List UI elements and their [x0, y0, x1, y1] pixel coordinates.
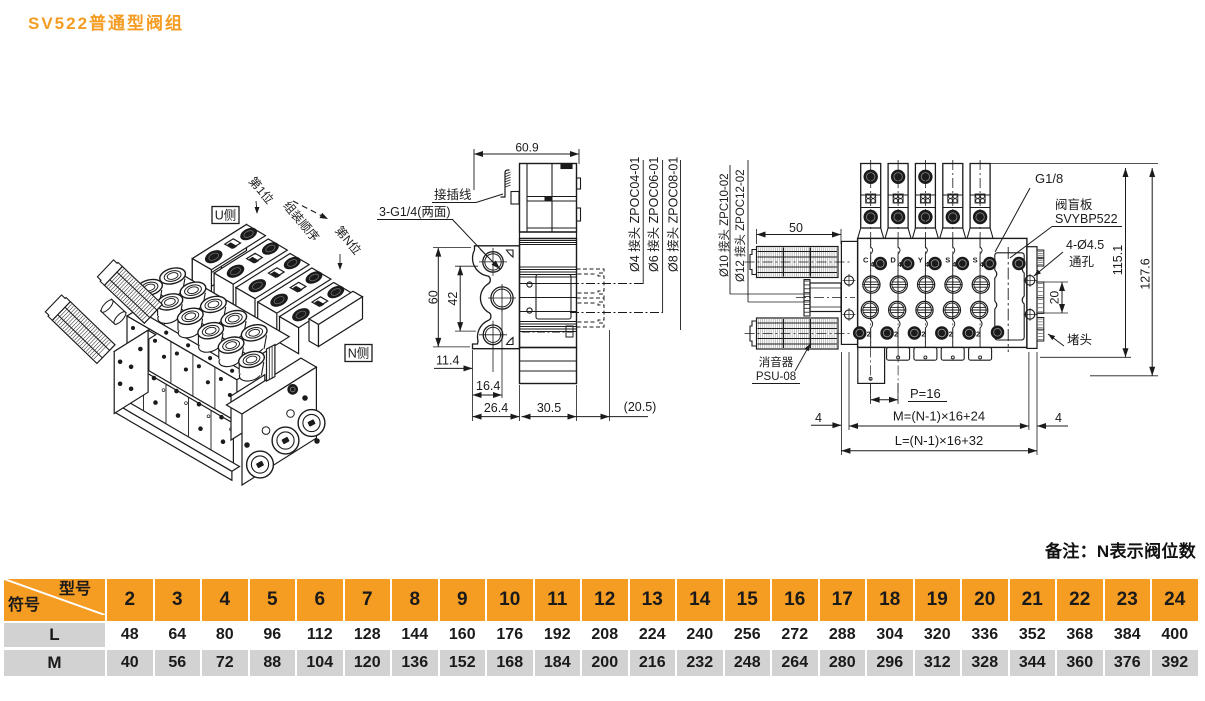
svg-text:2: 2: [949, 330, 953, 339]
svg-text:U侧: U侧: [215, 209, 237, 223]
svg-text:4: 4: [815, 411, 822, 425]
svg-text:SVYBP522: SVYBP522: [1055, 212, 1118, 226]
svg-text:60: 60: [426, 290, 440, 304]
svg-text:2: 2: [921, 330, 925, 339]
svg-text:115.1: 115.1: [1111, 245, 1125, 275]
svg-text:42: 42: [446, 292, 460, 306]
svg-text:L=(N-1)×16+32: L=(N-1)×16+32: [895, 433, 984, 448]
svg-text:S: S: [973, 256, 978, 265]
svg-text:2: 2: [867, 330, 871, 339]
svg-text:通孔: 通孔: [1069, 255, 1095, 269]
svg-text:型号: 型号: [59, 580, 91, 598]
svg-text:20: 20: [1048, 291, 1062, 305]
svg-text:接插线: 接插线: [434, 187, 472, 202]
svg-text:60.9: 60.9: [515, 141, 539, 155]
svg-text:2: 2: [894, 330, 898, 339]
svg-text:G1/8: G1/8: [1035, 171, 1063, 186]
svg-text:第1位: 第1位: [246, 174, 277, 207]
svg-text:Ø12 接头 ZPOC12-02: Ø12 接头 ZPOC12-02: [734, 170, 747, 282]
svg-text:C: C: [863, 256, 869, 265]
svg-text:Ø6 接头 ZPOC06-01: Ø6 接头 ZPOC06-01: [646, 157, 661, 272]
svg-text:3-G1/4(两面): 3-G1/4(两面): [379, 205, 451, 219]
svg-text:4: 4: [1055, 411, 1062, 425]
svg-text:N侧: N侧: [348, 347, 370, 361]
svg-text:30.5: 30.5: [537, 401, 561, 415]
svg-text:S: S: [945, 256, 950, 265]
svg-text:50: 50: [789, 221, 803, 235]
svg-text:符号: 符号: [8, 595, 40, 614]
svg-text:26.4: 26.4: [484, 401, 508, 415]
svg-text:Ø10 接头 ZPC10-02: Ø10 接头 ZPC10-02: [718, 173, 731, 277]
svg-text:第N位: 第N位: [332, 223, 364, 258]
svg-text:11.4: 11.4: [436, 354, 459, 368]
svg-text:D: D: [890, 256, 896, 265]
svg-text:堵头: 堵头: [1067, 333, 1092, 347]
svg-text:127.6: 127.6: [1139, 258, 1153, 289]
svg-text:PSU-08: PSU-08: [756, 371, 796, 383]
svg-text:M=(N-1)×16+24: M=(N-1)×16+24: [893, 409, 985, 424]
svg-text:4-Ø4.5: 4-Ø4.5: [1066, 238, 1104, 252]
svg-text:P=16: P=16: [910, 386, 941, 401]
svg-text:Ø4 接头 ZPOC04-01: Ø4 接头 ZPOC04-01: [627, 157, 642, 272]
svg-text:Y: Y: [918, 256, 923, 265]
svg-text:16.4: 16.4: [476, 379, 500, 393]
svg-text:(20.5): (20.5): [624, 400, 657, 414]
svg-text:组装顺序: 组装顺序: [280, 198, 322, 244]
svg-text:Ø8 接头 ZPOC08-01: Ø8 接头 ZPOC08-01: [666, 157, 681, 272]
svg-text:阀盲板: 阀盲板: [1055, 197, 1093, 212]
svg-text:2: 2: [976, 330, 980, 339]
svg-text:消音器: 消音器: [759, 355, 794, 369]
